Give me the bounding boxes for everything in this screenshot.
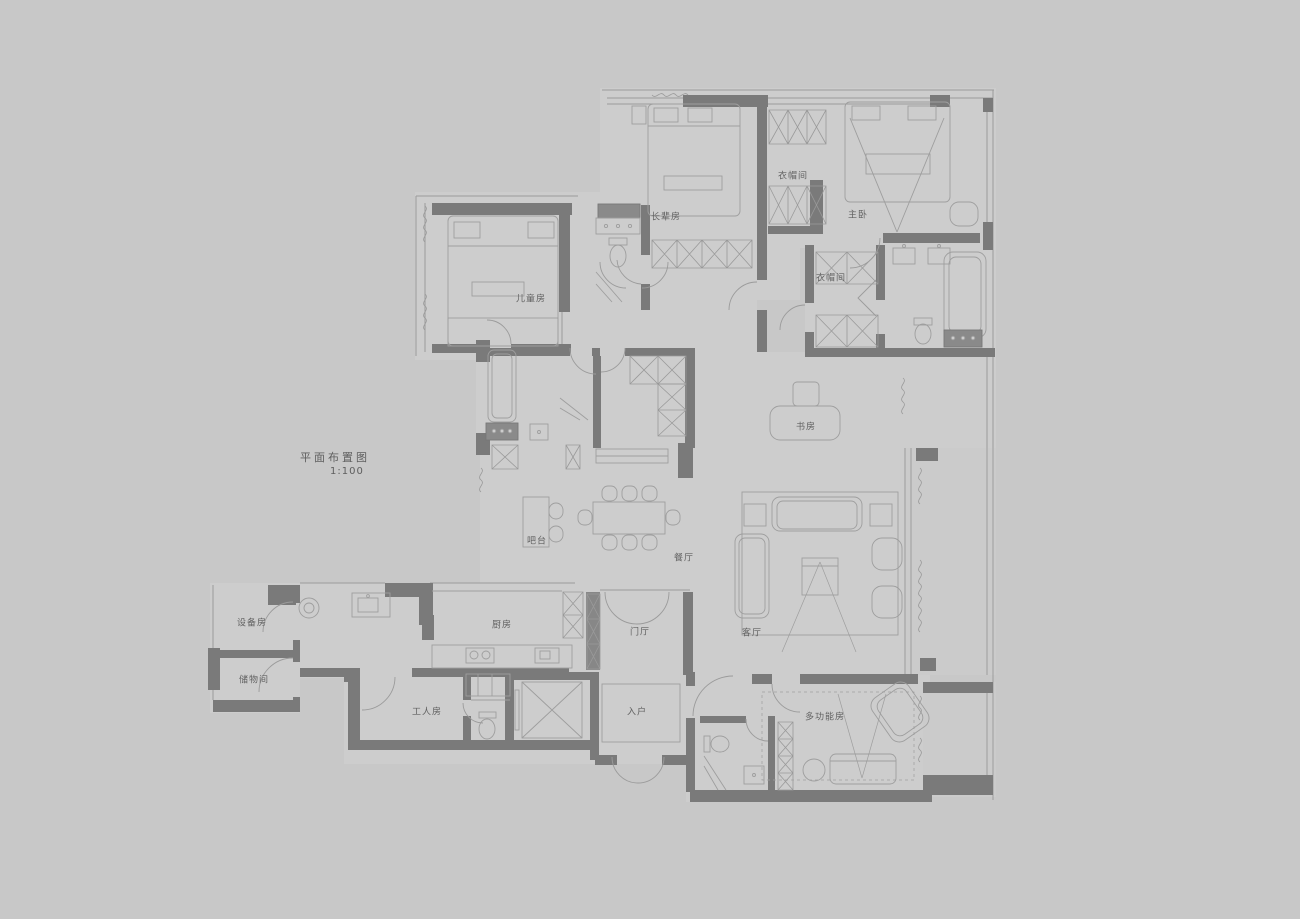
room-label-cloakroom-a: 衣帽间 [778, 169, 808, 182]
room-label-foyer: 门厅 [630, 625, 650, 638]
room-label-living-room: 客厅 [742, 626, 762, 639]
room-label-equipment-room: 设备房 [237, 616, 267, 629]
floor-plan: 儿童房 长辈房 衣帽间 主卧 衣帽间 书房 吧台 餐厅 客厅 厨房 门厅 设备房… [0, 0, 1300, 919]
room-label-kitchen: 厨房 [492, 618, 512, 631]
room-label-multi-function-room: 多功能房 [805, 710, 845, 723]
room-label-children-room: 儿童房 [516, 292, 546, 305]
floors [210, 88, 996, 802]
room-label-bar-counter: 吧台 [527, 534, 547, 547]
room-label-cloakroom-b: 衣帽间 [816, 271, 846, 284]
room-label-worker-room: 工人房 [412, 705, 442, 718]
room-label-master-bedroom: 主卧 [848, 208, 868, 221]
room-label-elder-room: 长辈房 [651, 210, 681, 223]
room-label-entry: 入户 [627, 705, 647, 718]
room-label-study: 书房 [796, 420, 816, 433]
room-label-dining-room: 餐厅 [674, 551, 694, 564]
floor-plan-drawing [0, 0, 1300, 919]
room-label-storage-room: 储物间 [239, 673, 269, 686]
plan-title: 平面布置图 [300, 449, 370, 465]
title-block: 平面布置图 1:100 [300, 449, 370, 477]
plan-scale: 1:100 [330, 466, 370, 477]
